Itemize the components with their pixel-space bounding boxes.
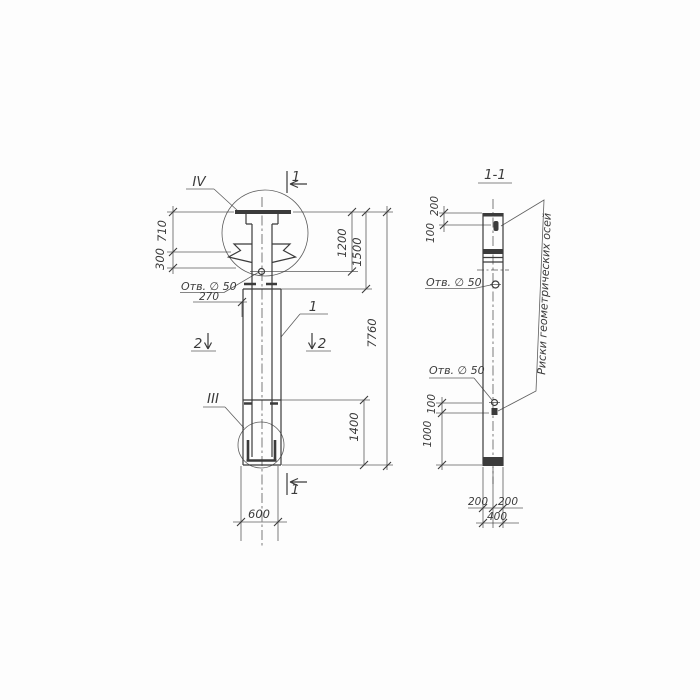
cut-label-right: 2 <box>318 336 327 352</box>
axes-note: Риски геометрических осей <box>535 213 554 375</box>
flange-notch-right <box>272 244 296 263</box>
dim-600: 600 <box>248 507 270 521</box>
axis-mark-bottom <box>492 408 498 415</box>
cut-label-left: 2 <box>194 336 203 352</box>
dim-270: 270 <box>199 291 219 303</box>
dim-200-left: 200 <box>468 496 488 508</box>
dim-200-top: 200 <box>429 196 441 216</box>
dim-100-bottom: 100 <box>426 394 438 414</box>
dim-1200: 1200 <box>335 228 349 257</box>
detail-circle-iv <box>222 190 308 276</box>
section-bottom-band <box>483 457 503 466</box>
front-view: IV III 1 1 2 2 1 Отв. ∅ 50 270 710 300 1… <box>153 169 393 547</box>
section-view: 1-1 200 100 Отв. ∅ 50 Отв. ∅ 50 100 1000… <box>422 167 554 528</box>
dim-400: 400 <box>487 511 507 523</box>
hole-note-section-bottom: Отв. ∅ 50 <box>429 364 485 377</box>
dim-1000: 1000 <box>422 420 434 447</box>
blueprint-page: IV III 1 1 2 2 1 Отв. ∅ 50 270 710 300 1… <box>0 0 700 700</box>
cut-mark-right-arrow <box>309 333 316 349</box>
section-joint-band <box>483 249 503 254</box>
section-top-plate <box>483 213 503 217</box>
dim-100-top: 100 <box>425 223 437 243</box>
flange-notch-left <box>229 244 253 263</box>
axis-mark-top <box>494 221 499 231</box>
dim-1500: 1500 <box>350 237 364 266</box>
dim-710: 710 <box>155 220 169 242</box>
section-title: 1-1 <box>484 167 506 183</box>
hole-note-section-top: Отв. ∅ 50 <box>426 276 482 289</box>
position-label: 1 <box>309 299 318 315</box>
detail-label-iii: III <box>207 391 219 407</box>
cut-mark-left-arrow <box>205 333 212 349</box>
dim-300: 300 <box>153 248 167 270</box>
cut-label-top: 1 <box>292 169 301 185</box>
dim-7760: 7760 <box>365 318 379 347</box>
cap-plate <box>235 210 291 214</box>
drawing-canvas: IV III 1 1 2 2 1 Отв. ∅ 50 270 710 300 1… <box>0 0 700 700</box>
cut-label-bottom: 1 <box>291 482 300 498</box>
dim-200-right: 200 <box>498 496 518 508</box>
detail-label-iv: IV <box>192 174 207 190</box>
dim-1400: 1400 <box>347 412 361 441</box>
